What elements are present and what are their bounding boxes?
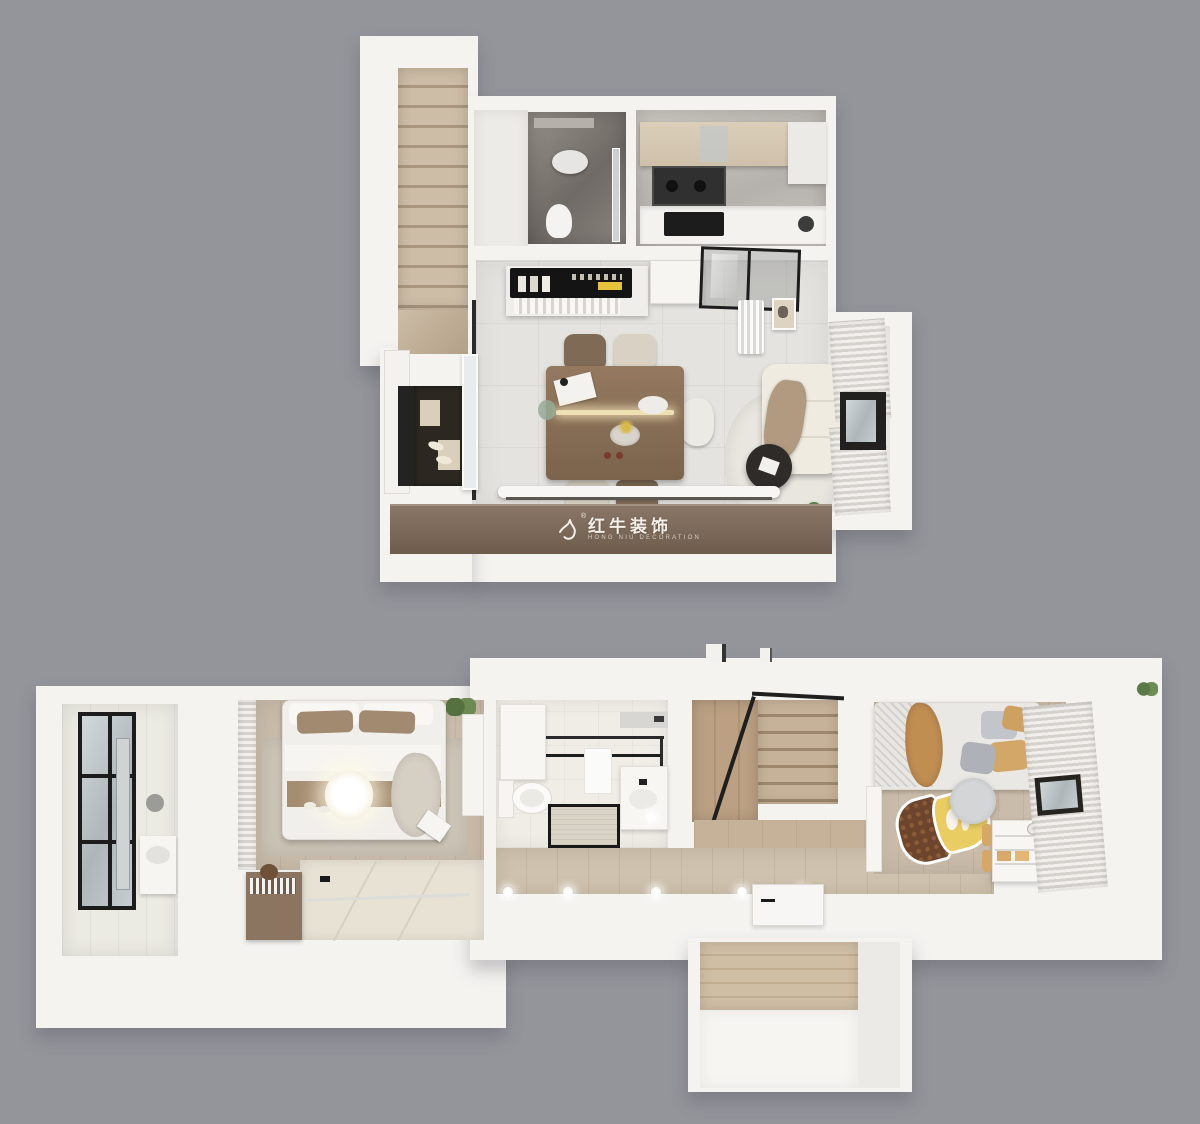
sideboard — [650, 260, 704, 304]
burner — [694, 180, 706, 192]
laundry-basin — [140, 836, 176, 894]
slipper — [304, 802, 316, 809]
toilet-seat — [520, 789, 544, 807]
bathroom-cabinet — [500, 704, 546, 780]
range-hood — [652, 166, 726, 206]
basin-bowl — [146, 846, 170, 864]
bin-stack — [982, 824, 992, 846]
shelf-bin — [1015, 851, 1029, 861]
railing-post-top — [760, 648, 772, 662]
pillow-brown — [359, 710, 416, 734]
upper-landing-floor — [474, 110, 528, 258]
white-dish — [638, 396, 668, 414]
coffee-table — [746, 444, 792, 490]
bathroom-mirror-shelf — [620, 712, 668, 728]
platform-seam — [397, 861, 441, 941]
decanter — [538, 400, 556, 420]
window-mullion — [108, 712, 112, 910]
shower-glass-frame — [546, 736, 664, 739]
entry-door-leaf — [752, 884, 824, 926]
kitchen-vent-panel — [700, 126, 728, 162]
kids-desk — [866, 786, 882, 872]
dining-chair-cream — [614, 334, 656, 368]
dining-chair-brown — [564, 334, 606, 368]
full-length-mirror — [462, 354, 478, 490]
recessed-light — [562, 886, 574, 898]
roof-plant — [1136, 682, 1158, 696]
alcove-wood-accent-wall — [700, 942, 858, 1010]
upper-floor-plan: ® 红牛装饰 HONG NIU DECORATION — [0, 0, 1200, 620]
dried-flowers — [616, 420, 636, 434]
kids-bed — [874, 702, 1040, 790]
wall-art — [772, 298, 796, 330]
door-glass-highlight — [710, 254, 738, 299]
kitchen-counter — [640, 206, 826, 244]
menu-label — [598, 282, 622, 290]
kids-ceiling-lamp — [950, 778, 996, 824]
bathroom-vanity — [620, 766, 668, 830]
brand-watermark: ® 红牛装饰 HONG NIU DECORATION — [558, 512, 778, 546]
table-camera — [560, 378, 568, 386]
storage-chest — [246, 872, 302, 940]
drying-rack — [116, 738, 130, 890]
kids-window-glass — [1040, 779, 1078, 810]
bay-window-glass — [846, 400, 876, 442]
recessed-light — [650, 886, 662, 898]
bottle — [542, 276, 550, 292]
railing-post-top — [706, 644, 726, 662]
burner — [666, 180, 678, 192]
shower-floor-mat — [548, 804, 620, 848]
registered-mark: ® — [581, 513, 586, 520]
radiator — [738, 300, 764, 354]
dining-table — [546, 366, 684, 480]
hanging-towel — [584, 748, 612, 794]
vanity-basin — [629, 789, 657, 809]
stair-winders — [398, 310, 468, 354]
cup — [604, 452, 611, 459]
kitchen-sink — [798, 216, 814, 232]
tv-console: ® 红牛装饰 HONG NIU DECORATION — [390, 504, 832, 554]
bay-window — [840, 392, 886, 450]
bottle — [518, 276, 526, 292]
bull-logo-icon: ® — [558, 516, 582, 542]
shelf-bin — [997, 851, 1011, 861]
staircase-upper — [398, 68, 468, 310]
brand-name-cn: 红牛装饰 — [588, 518, 701, 535]
phone-on-platform — [320, 876, 330, 882]
vanity-faucet — [639, 779, 647, 785]
tatami-platform — [300, 860, 484, 940]
chest-vent — [250, 878, 296, 894]
alcove-side-wall — [858, 942, 900, 1088]
slipper — [318, 806, 330, 813]
floorplan-canvas: ® 红牛装饰 HONG NIU DECORATION — [0, 0, 1200, 1124]
bath-kitchen-divider-wall — [626, 110, 636, 246]
toilet-upper — [552, 150, 588, 174]
cushion-gray — [959, 741, 997, 775]
bottle — [530, 276, 538, 292]
table-magazine — [553, 372, 596, 406]
water-heater — [546, 204, 572, 238]
pillow-brown — [297, 710, 354, 734]
table-tray — [758, 456, 780, 475]
toilet-bowl — [512, 782, 552, 814]
brand-name-en: HONG NIU DECORATION — [588, 535, 701, 541]
menu-text-marks — [572, 274, 622, 280]
door-handle — [761, 899, 775, 902]
bar-menu-board — [510, 268, 632, 298]
bathroom-upper-floor — [528, 112, 628, 244]
laundry-window — [78, 712, 136, 910]
clothes-rail — [306, 893, 470, 902]
projector-screen-slot — [506, 497, 772, 500]
kitchen-corner-unit — [788, 122, 826, 184]
bathroom-shelf — [534, 118, 594, 128]
rug-pattern-block — [420, 400, 440, 426]
entry-rug — [414, 386, 464, 486]
recessed-light — [502, 886, 514, 898]
platform-seam — [333, 861, 377, 941]
lower-floor-plan — [0, 620, 1200, 1124]
wine-glass-rack — [514, 298, 620, 314]
entry-dark-panel — [398, 386, 414, 486]
bag-on-chest — [260, 864, 278, 880]
cooktop — [664, 212, 724, 236]
bedroom-desk — [462, 714, 484, 816]
art-mark — [778, 306, 788, 318]
faucet-fitting — [654, 716, 664, 722]
shower-glass-panel — [612, 148, 620, 242]
door-divider — [746, 251, 751, 307]
bedroom-curtain — [238, 700, 258, 870]
alcove-floor — [700, 1010, 858, 1088]
cup — [616, 452, 623, 459]
kids-window — [1034, 774, 1083, 816]
bin-stack — [982, 850, 992, 872]
staircase-lower — [758, 700, 838, 804]
bar-cabinet — [506, 266, 648, 316]
vanity-light — [645, 811, 657, 823]
laundry-bucket — [146, 794, 164, 812]
recessed-light — [736, 886, 748, 898]
bedroom-ceiling-lamp — [324, 770, 374, 820]
